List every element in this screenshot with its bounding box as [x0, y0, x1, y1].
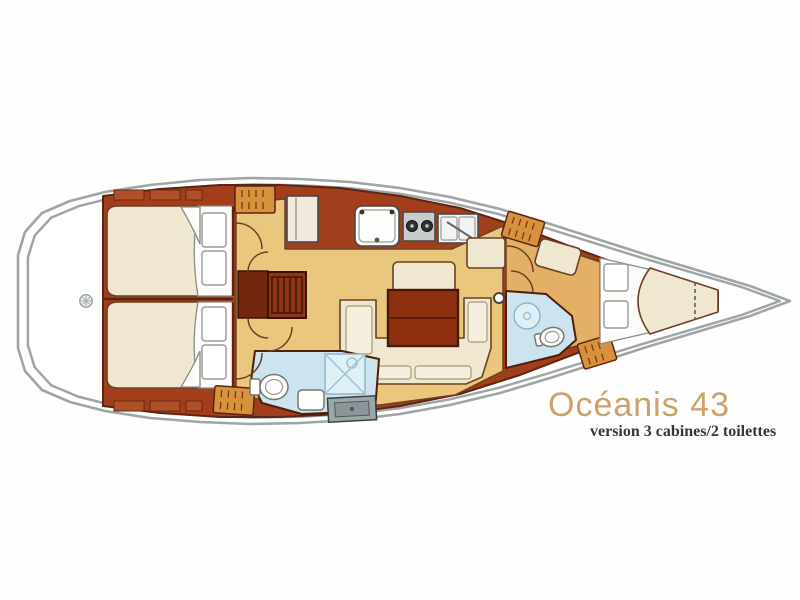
salon-bench: [393, 262, 455, 292]
bath-mat: [298, 390, 324, 410]
berth-pillow: [202, 213, 226, 247]
boat-model-title: Océanis 43: [548, 386, 730, 425]
hanging-locker: [235, 186, 275, 213]
seat-cushion: [415, 366, 471, 379]
seat-cushion: [346, 306, 372, 354]
floor-plan-drawing: [0, 0, 800, 600]
version-subtitle: version 3 cabines/2 toilettes: [590, 423, 776, 441]
windlass-icon: [80, 295, 92, 307]
berth-pillow: [202, 307, 226, 341]
berth-pillow: [604, 301, 628, 328]
shower-tray: [325, 354, 365, 394]
aft-cabin-starboard: [107, 302, 233, 388]
shower-tray: [514, 303, 540, 329]
toilet-icon: [250, 375, 288, 400]
aft-cabin-port: [107, 206, 233, 296]
berth-pillow: [202, 345, 226, 379]
seat-cushion: [468, 302, 487, 342]
chart-table: [467, 238, 505, 268]
berth-pillow: [202, 251, 226, 285]
vanity-sink: [327, 396, 376, 422]
mast-post: [494, 293, 504, 303]
companionway-steps: [238, 271, 306, 318]
galley-sink: [355, 206, 399, 246]
hanging-locker: [213, 386, 255, 416]
salon-table: [388, 262, 458, 346]
galley-cabinet: [287, 196, 318, 242]
berth-pillow: [604, 264, 628, 291]
stove-icon: [403, 212, 435, 241]
boat-floor-plan: Océanis 43 version 3 cabines/2 toilettes: [0, 0, 800, 600]
